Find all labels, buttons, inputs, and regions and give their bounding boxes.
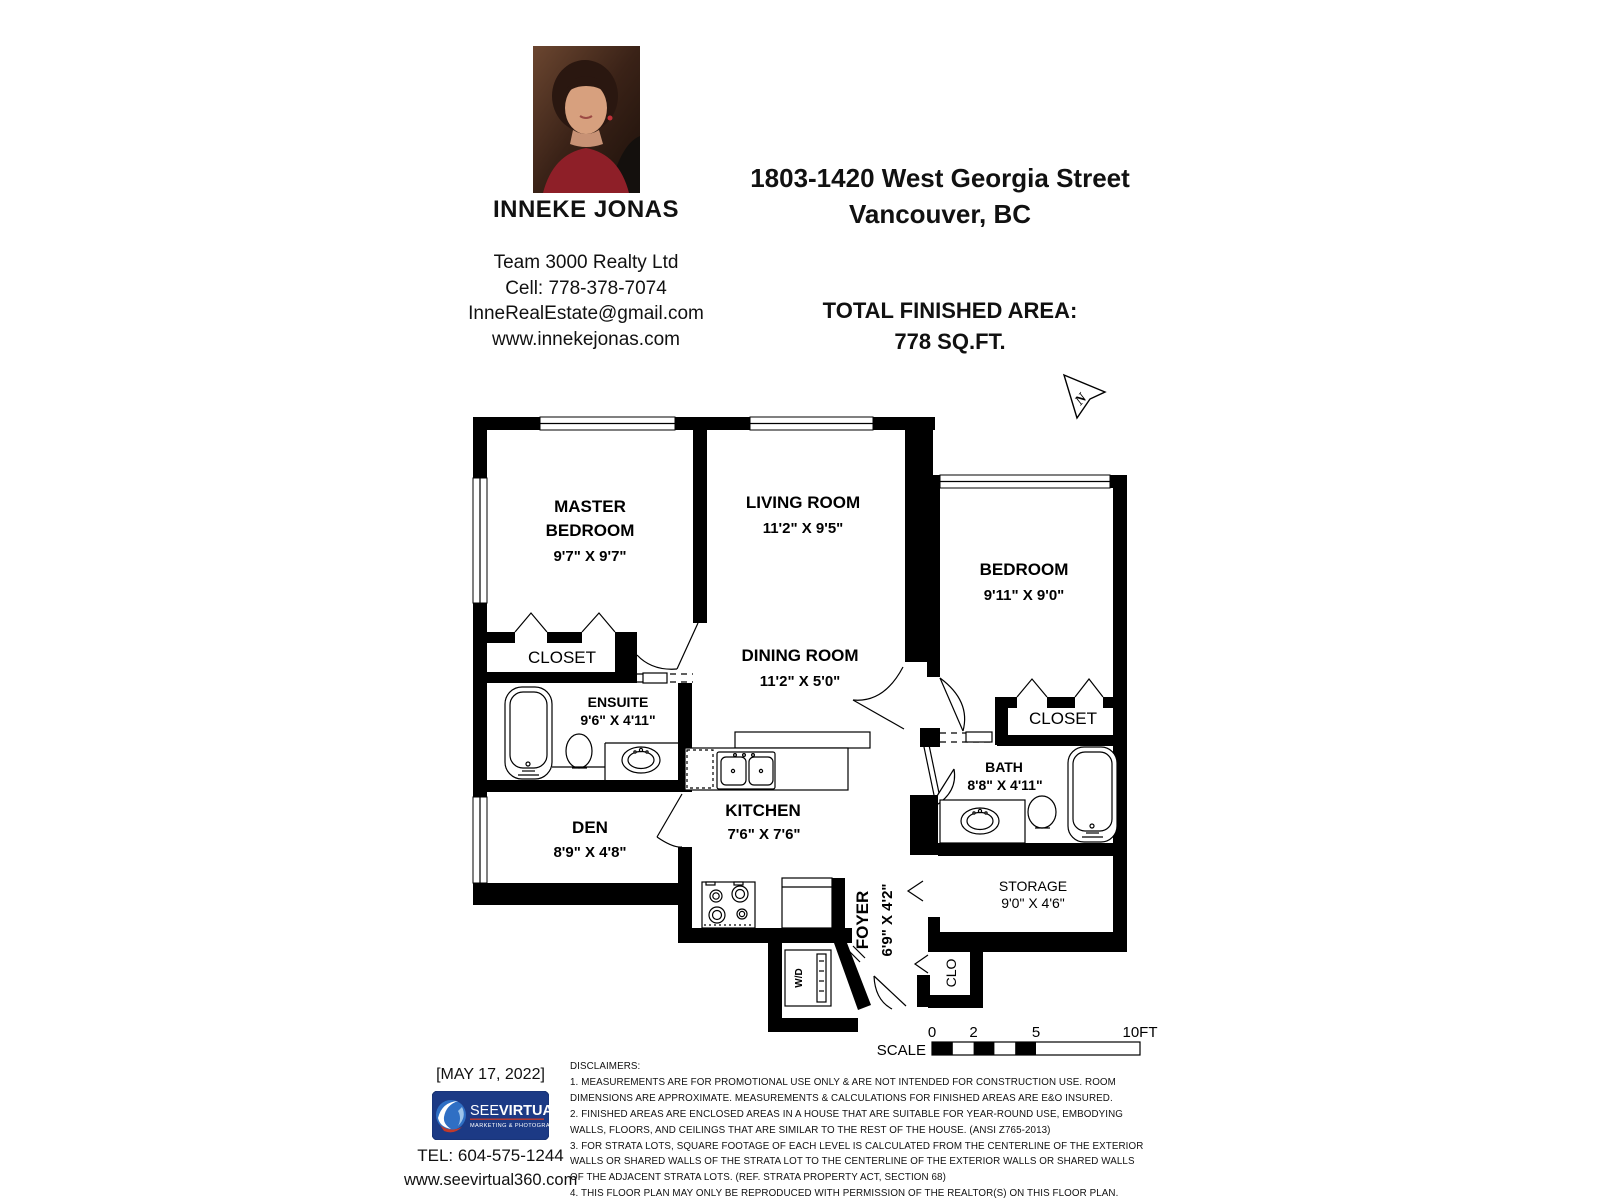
scale-bar: SCALE 0 2 5 10FT <box>877 1024 1158 1059</box>
address-line1: 1803-1420 West Georgia Street <box>720 160 1160 196</box>
disclaimer-item: 1. MEASUREMENTS ARE FOR PROMOTIONAL USE … <box>570 1075 1146 1107</box>
kitchen-counter <box>685 732 870 790</box>
stove <box>702 882 755 928</box>
scale-tick-10ft: 10FT <box>1122 1024 1157 1041</box>
label-kitchen-dims: 7'6" X 7'6" <box>727 826 800 843</box>
label-living: LIVING ROOM <box>746 493 860 512</box>
ensuite-tub <box>505 687 552 779</box>
agent-name: INNEKE JONAS <box>440 196 732 224</box>
logo-subtitle: MARKETING & PHOTOGRAPHY <box>470 1123 549 1129</box>
scale-label: SCALE <box>877 1042 926 1059</box>
seevirtual-logo: SEEVIRTUAL MARKETING & PHOTOGRAPHY <box>432 1091 549 1140</box>
label-foyer: FOYER <box>853 891 872 950</box>
footer-tel: TEL: 604-575-1244 <box>408 1146 573 1166</box>
address-line2: Vancouver, BC <box>720 196 1160 232</box>
label-bedroom-dims: 9'11" X 9'0" <box>984 587 1065 604</box>
property-address: 1803-1420 West Georgia Street Vancouver,… <box>720 160 1160 232</box>
label-den: DEN <box>572 818 608 837</box>
label-foyer-dims: 6'9" X 4'2" <box>879 883 896 956</box>
label-ensuite-dims: 9'6" X 4'11" <box>580 712 655 728</box>
label-bath: BATH <box>985 759 1023 775</box>
label-dining-dims: 11'2" X 5'0" <box>760 673 841 690</box>
label-ensuite: ENSUITE <box>588 694 649 710</box>
plan-date: [MAY 17, 2022] <box>418 1066 563 1084</box>
label-storage-dims: 9'0" X 4'6" <box>1001 895 1065 911</box>
label-master-dims: 9'7" X 9'7" <box>553 548 626 565</box>
scale-tick-5: 5 <box>1032 1024 1040 1041</box>
bath-sink <box>940 800 1025 843</box>
disclaimers-title: DISCLAIMERS: <box>570 1059 1146 1075</box>
floorplan-flyer: { "header": { "agent_name": "INNEKE JONA… <box>0 0 1600 1200</box>
disclaimers: DISCLAIMERS: 1. MEASUREMENTS ARE FOR PRO… <box>570 1059 1146 1200</box>
label-master-1: MASTER <box>554 497 626 516</box>
agent-contact-block: Team 3000 Realty Ltd Cell: 778-378-7074 … <box>430 250 742 352</box>
floorplan-drawing: MASTER BEDROOM 9'7" X 9'7" LIVING ROOM 1… <box>440 360 1160 1070</box>
label-closet-bedroom: CLOSET <box>1029 709 1097 728</box>
agent-photo <box>533 46 640 193</box>
scale-tick-0: 0 <box>928 1024 936 1041</box>
label-closet-master: CLOSET <box>528 648 596 667</box>
north-arrow: N <box>1064 375 1105 418</box>
label-wd: W/D <box>794 968 805 987</box>
agent-cell: Cell: 778-378-7074 <box>430 276 742 302</box>
label-storage: STORAGE <box>999 878 1067 894</box>
label-dining: DINING ROOM <box>741 646 858 665</box>
logo-see: SEE <box>470 1103 499 1119</box>
disclaimer-item: 2. FINISHED AREAS ARE ENCLOSED AREAS IN … <box>570 1107 1146 1139</box>
logo-virtual: VIRTUAL <box>499 1103 549 1119</box>
label-master-2: BEDROOM <box>546 521 635 540</box>
total-area-label: TOTAL FINISHED AREA: <box>770 295 1130 326</box>
fridge <box>782 878 832 928</box>
label-den-dims: 8'9" X 4'8" <box>553 844 626 861</box>
total-area-value: 778 SQ.FT. <box>770 326 1130 357</box>
label-clo: CLO <box>943 959 959 988</box>
ensuite-toilet <box>566 734 592 768</box>
bath-tub <box>1068 747 1117 842</box>
label-living-dims: 11'2" X 9'5" <box>763 520 844 537</box>
bath-toilet <box>1028 796 1056 828</box>
footer-website: www.seevirtual360.com <box>404 1171 577 1190</box>
total-area: TOTAL FINISHED AREA: 778 SQ.FT. <box>770 295 1130 357</box>
agent-website: www.innekejonas.com <box>430 327 742 353</box>
agent-company: Team 3000 Realty Ltd <box>430 250 742 276</box>
label-kitchen: KITCHEN <box>725 801 801 820</box>
scale-tick-2: 2 <box>969 1024 977 1041</box>
washer-dryer <box>785 950 831 1006</box>
svg-text:SEEVIRTUAL: SEEVIRTUAL <box>470 1103 549 1119</box>
disclaimer-item: 4. THIS FLOOR PLAN MAY ONLY BE REPRODUCE… <box>570 1186 1146 1200</box>
label-bedroom: BEDROOM <box>980 560 1069 579</box>
agent-email: InneRealEstate@gmail.com <box>430 301 742 327</box>
label-bath-dims: 8'8" X 4'11" <box>967 777 1042 793</box>
disclaimer-item: 3. FOR STRATA LOTS, SQUARE FOOTAGE OF EA… <box>570 1139 1146 1187</box>
